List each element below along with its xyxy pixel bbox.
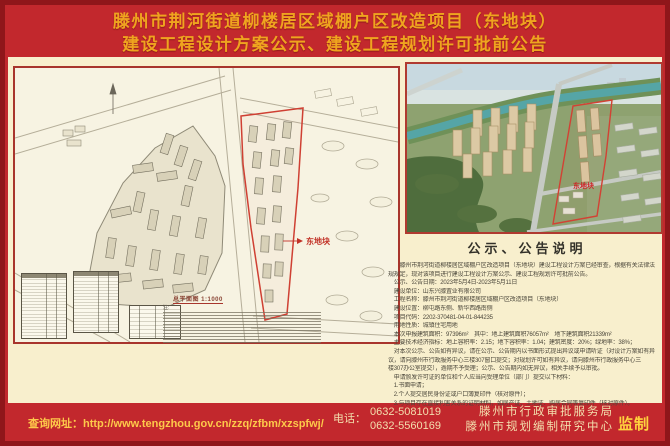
notice-line: 主要技术经济指标：地上容积率：2.15；地下容积率：1.04；建筑密度：20%；… (388, 339, 666, 348)
footer: 查询网址：http://www.tengzhou.gov.cn/zzq/zfbm… (8, 403, 662, 441)
notice-line: 用地性质：城镇住宅用地 (388, 322, 666, 331)
poster-title-line2: 建设工程设计方案公示、建设工程规划许可批前公告 (0, 33, 670, 56)
notice-line: 滕州市荆河街道柳楼居区域棚户区改造项目（东地块）建设工程设计方案已经审查，根据有… (388, 262, 666, 271)
notice-section: 公示、公告说明 滕州市荆河街道柳楼居区域棚户区改造项目（东地块）建设工程设计方案… (388, 238, 666, 408)
context-buildings-northeast (315, 89, 378, 117)
notice-line: 工程名称：滕州市荆河街道柳楼居区域棚户区改造项目（东地块） (388, 296, 666, 305)
phone-number: 0632-5560169 (370, 419, 441, 433)
notice-line: 建设位置：柳屯路东侧、新华西路南侧 (388, 305, 666, 314)
notice-line: 公示、公告日期：2023年5月4日-2023年5月11日 (388, 279, 666, 288)
notice-heading: 公示、公告说明 (388, 238, 666, 257)
notice-line: 项目代码：2202-370481-04-01-844235 (388, 314, 666, 323)
site-plan: 东地块 (13, 66, 400, 344)
notice-line: 申请颁发许可证的单位和个人应当向受理单位（部门）提交以下材料： (388, 374, 666, 383)
notice-line: 规规定，现对该项目进行建设工程设计方案公示、建设工程规划许可批前公告。 (388, 271, 666, 280)
public-notice-poster: 滕州市荆河街道柳楼居区域棚户区改造项目（东地块） 建设工程设计方案公示、建设工程… (0, 0, 670, 446)
table-column-line (108, 272, 109, 332)
footer-url: 查询网址：http://www.tengzhou.gov.cn/zzq/zfbm… (28, 415, 324, 431)
supervise-label: 监制 (618, 413, 650, 434)
legend-column-line (155, 306, 156, 338)
poster-title: 滕州市荆河街道柳楼居区域棚户区改造项目（东地块） 建设工程设计方案公示、建设工程… (0, 10, 670, 56)
url-value: http://www.tengzhou.gov.cn/zzq/zfbm/xzsp… (83, 418, 324, 430)
table-column-line (46, 274, 47, 338)
agency-name: 滕州市行政审批服务局 (466, 405, 615, 420)
aerial-rendering: 东地块 (405, 62, 663, 234)
notice-line: 对本次公示、公告如有异议，请在公示、公告期内以书面形式提出异议或申请听证（对设计… (388, 348, 666, 357)
legend-column-line (139, 306, 140, 338)
plan-notes-text-lines (163, 312, 321, 345)
plan-notes: 注: (163, 306, 327, 345)
notice-line: 建设单位：山东兴滕置业有限公司 (388, 288, 666, 297)
notice-line: 1.书面申请； (388, 382, 666, 391)
context-trees-east (311, 141, 392, 321)
table-column-line (56, 274, 57, 338)
notice-line: 议，请向滕州市行政服务中心三楼307窗口提交；对规划许可如有异议，请向滕州市行政… (388, 357, 666, 366)
notice-line: 2.个人提交居民身份证或户口簿复印件（核对原件）； (388, 391, 666, 400)
issuing-agencies: 滕州市行政审批服务局 滕州市规划编制研究中心 (466, 405, 615, 435)
phone-number: 0632-5081019 (370, 405, 441, 419)
notice-line: 本次申报建筑面积：97396m² 其中：地上建筑面积76057m² 地下建筑面积… (388, 331, 666, 340)
metrics-table-2 (73, 271, 119, 333)
table-column-line (98, 272, 99, 332)
phone-numbers: 0632-5081019 0632-5560169 (370, 405, 441, 433)
agency-name: 滕州市规划编制研究中心 (466, 420, 615, 435)
notice-line: 楼307办公室提交），逾期不予受理；公示、公告期内如无异议，相关手续予以审批。 (388, 365, 666, 374)
aerial-rendering-image: 东地块 (407, 64, 661, 232)
poster-title-line1: 滕州市荆河街道柳楼居区域棚户区改造项目（东地块） (0, 10, 670, 33)
plan-notes-label: 注: (163, 306, 327, 311)
east-block-label: 东地块 (306, 236, 331, 246)
metrics-table-1 (21, 273, 67, 339)
plan-caption: 总平面图 1:1000 (173, 294, 223, 304)
rendering-east-block-label: 东地块 (573, 181, 595, 190)
content-panel: 东地块 (8, 57, 662, 403)
phone-label: 电话： (333, 410, 366, 426)
url-label: 查询网址： (28, 418, 83, 430)
arrow-right-icon (297, 238, 303, 244)
